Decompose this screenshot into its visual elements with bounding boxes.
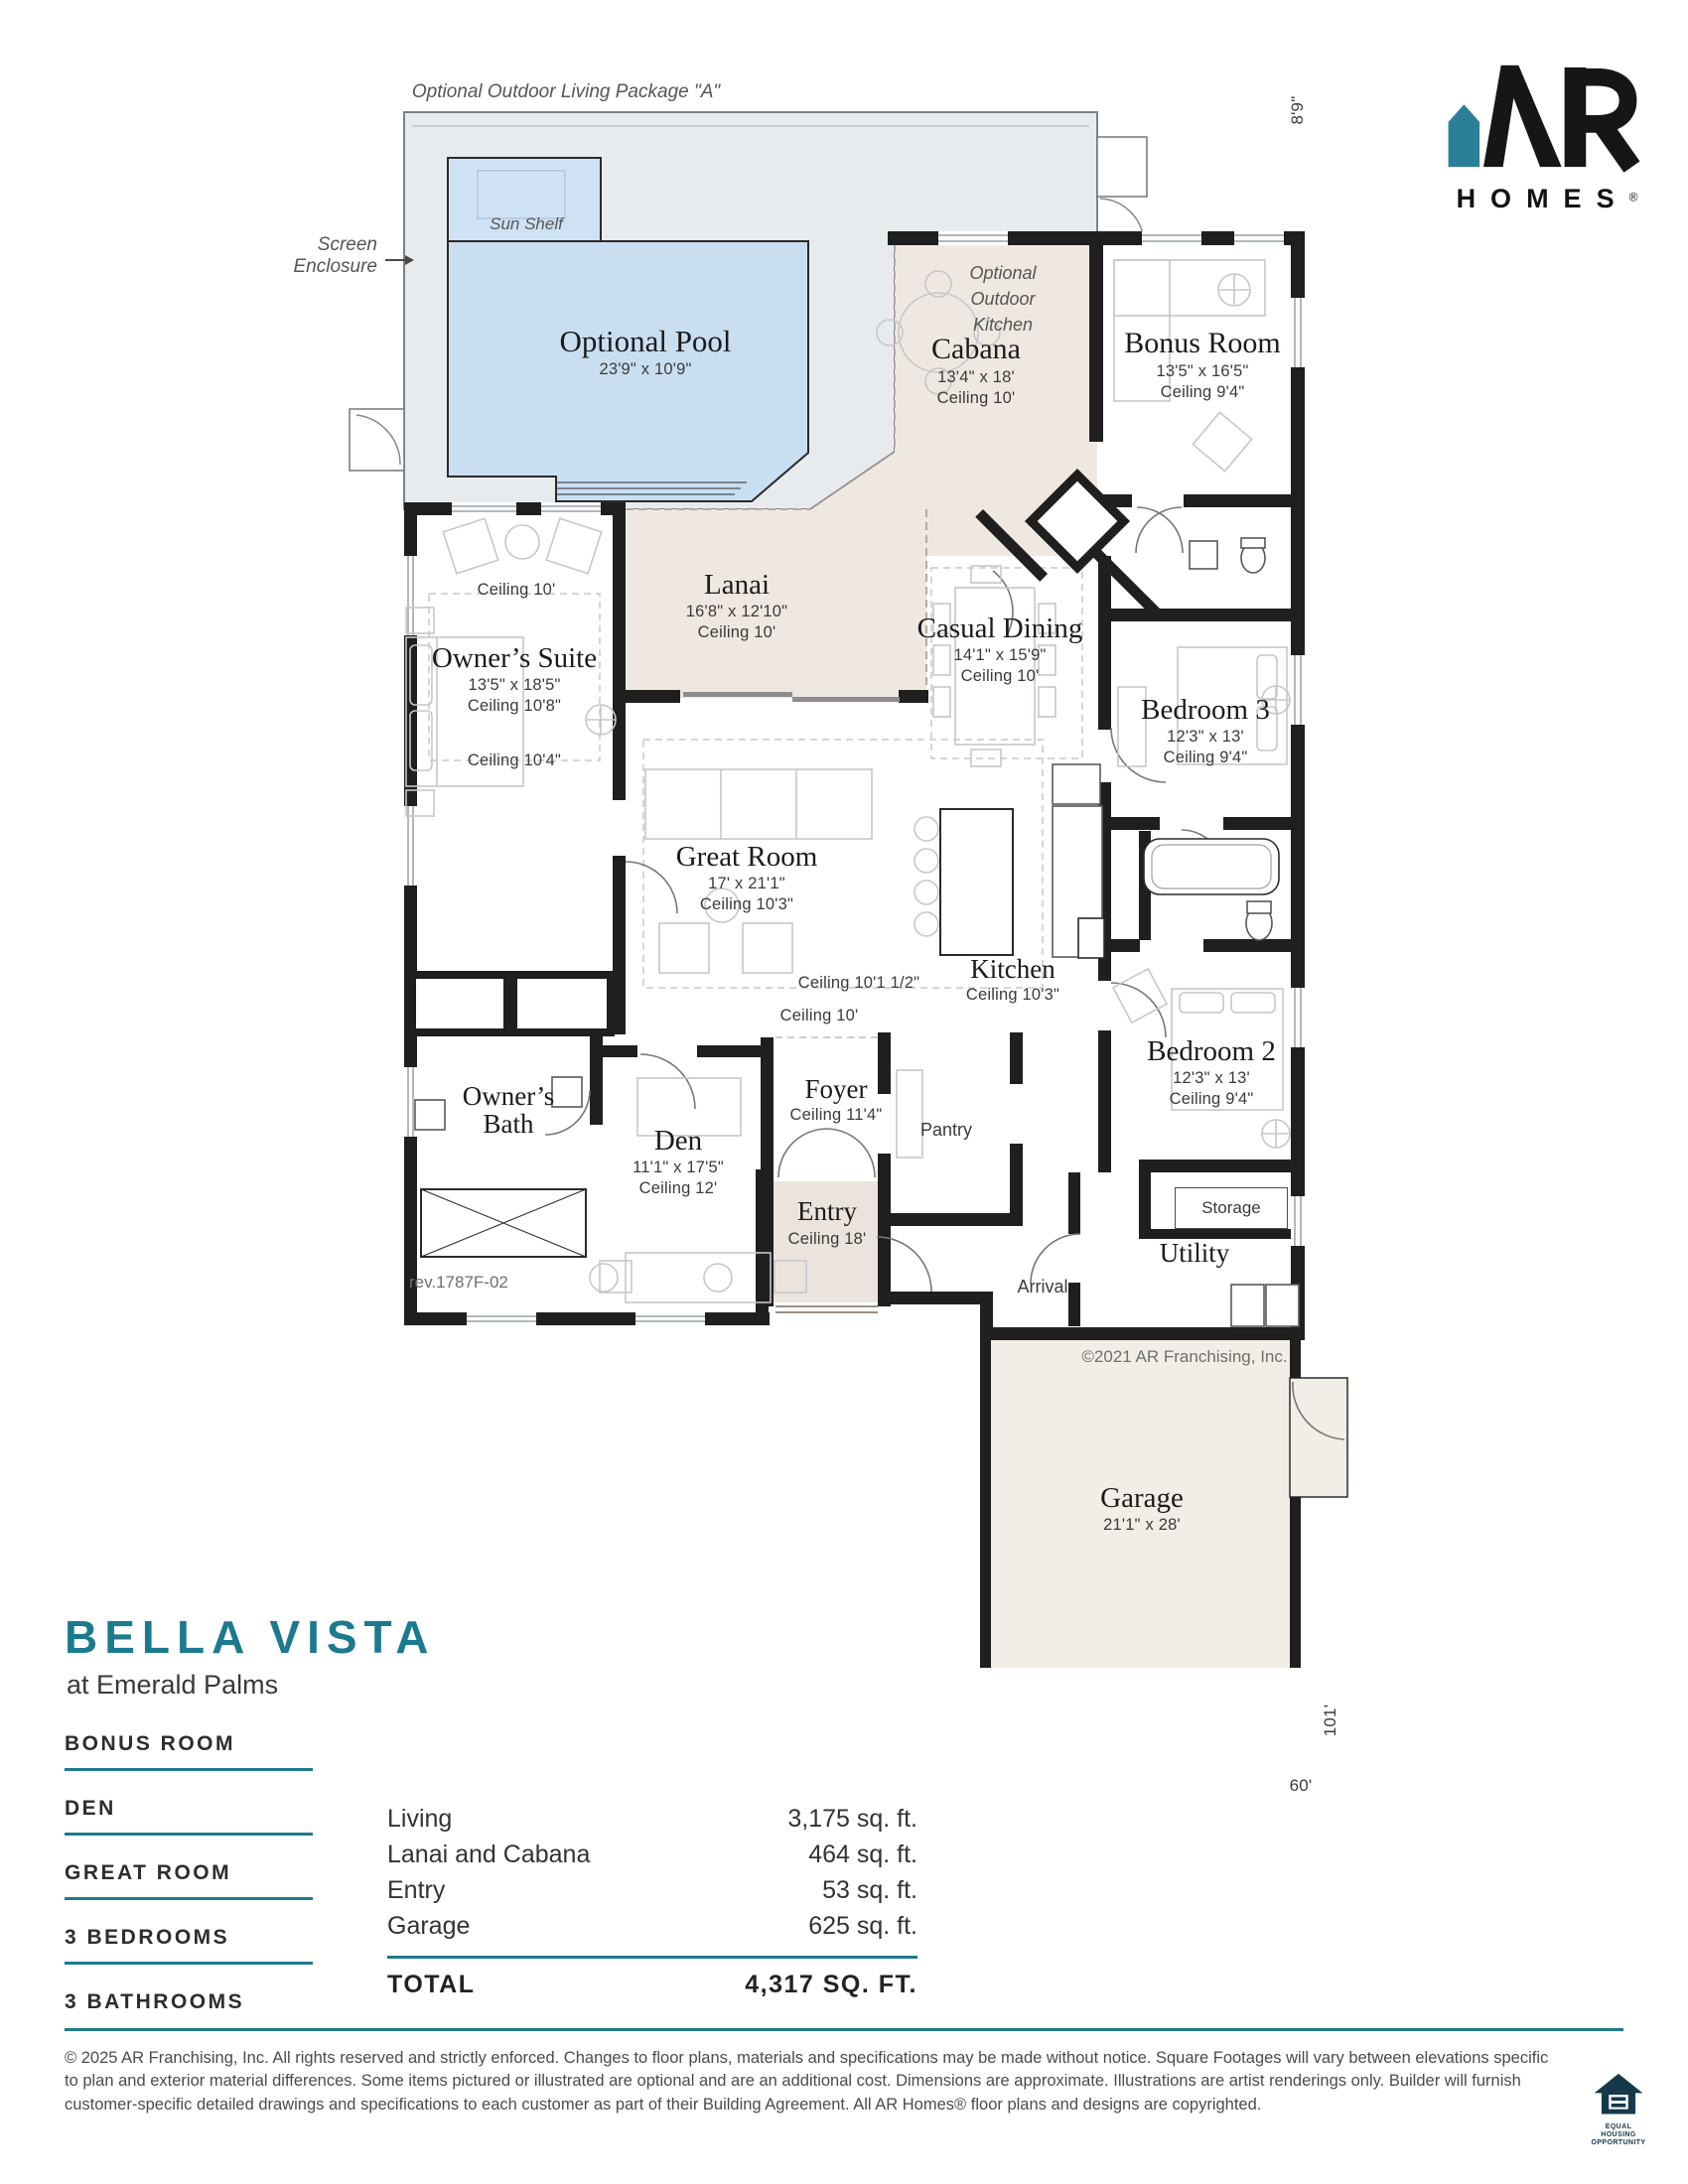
area-value: 464 sq. ft. bbox=[808, 1841, 917, 1876]
area-label: Entry bbox=[387, 1876, 445, 1912]
feature-bonus-room: BONUS ROOM bbox=[65, 1732, 313, 1756]
area-label: Garage bbox=[387, 1912, 470, 1948]
casual-dining-ceiling: Ceiling 10' bbox=[891, 666, 1109, 687]
feature-list: BONUS ROOM DEN GREAT ROOM 3 BEDROOMS 3 B… bbox=[65, 1732, 313, 2014]
table-row: Garage625 sq. ft. bbox=[387, 1912, 917, 1948]
owners-bath-line2: Bath bbox=[419, 1110, 598, 1138]
dimension-top: 8'9" bbox=[1287, 75, 1309, 145]
bedroom2-dims: 12'3" x 13' bbox=[1112, 1068, 1311, 1089]
screen-enclosure-line1: Screen bbox=[228, 234, 377, 256]
den-ceiling: Ceiling 12' bbox=[589, 1178, 768, 1199]
area-label: Lanai and Cabana bbox=[387, 1841, 590, 1876]
owners-bath-line1: Owner’s bbox=[419, 1082, 598, 1110]
ar-homes-logo: HOMES® bbox=[1428, 58, 1658, 214]
table-total-divider bbox=[387, 1956, 917, 1959]
plan-copyright: ©2021 AR Franchising, Inc. bbox=[1036, 1347, 1334, 1367]
bedroom3-label: Bedroom 3 bbox=[1106, 695, 1305, 725]
pool-label: Optional Pool bbox=[496, 326, 794, 358]
floor-plan-sheet: Optional Outdoor Living Package "A" Scre… bbox=[0, 0, 1688, 2184]
footer-divider bbox=[65, 2028, 1623, 2031]
bonus-room-dims: 13'5" x 16'5" bbox=[1103, 361, 1302, 382]
feature-divider bbox=[65, 1962, 313, 1965]
garage-dims: 21'1" x 28' bbox=[1023, 1515, 1261, 1536]
area-value: 53 sq. ft. bbox=[822, 1876, 917, 1912]
owners-suite-ceiling-below: Ceiling 10'4" bbox=[405, 751, 624, 771]
casual-dining-dims: 14'1" x 15'9" bbox=[891, 645, 1109, 666]
plan-title: BELLA VISTA bbox=[65, 1610, 435, 1664]
feature-bedrooms: 3 BEDROOMS bbox=[65, 1926, 313, 1950]
legal-text: © 2025 AR Franchising, Inc. All rights r… bbox=[65, 2047, 1549, 2116]
casual-dining-label: Casual Dining bbox=[891, 614, 1109, 643]
bedroom3-ceiling: Ceiling 9'4" bbox=[1106, 748, 1305, 768]
outdoor-kitchen-line1: Optional bbox=[904, 260, 1102, 286]
pantry-label: Pantry bbox=[897, 1120, 996, 1141]
lanai-ceiling: Ceiling 10' bbox=[647, 622, 826, 643]
table-total-row: TOTAL4,317 SQ. FT. bbox=[387, 1971, 917, 1999]
bedroom3-dims: 12'3" x 13' bbox=[1106, 727, 1305, 748]
pool-dims: 23'9" x 10'9" bbox=[496, 359, 794, 380]
area-value: 625 sq. ft. bbox=[808, 1912, 917, 1948]
bedroom2-ceiling: Ceiling 9'4" bbox=[1112, 1089, 1311, 1110]
den-dims: 11'1" x 17'5" bbox=[589, 1158, 768, 1178]
owners-suite-label: Owner’s Suite bbox=[405, 643, 624, 673]
feature-divider bbox=[65, 1833, 313, 1836]
screen-enclosure-label: Screen Enclosure bbox=[228, 234, 377, 278]
ceiling-note-hall: Ceiling 10' bbox=[740, 1006, 899, 1026]
great-room-label: Great Room bbox=[623, 842, 871, 872]
great-room-ceiling: Ceiling 10'3" bbox=[623, 894, 871, 915]
screen-enclosure-arrow-head bbox=[405, 255, 414, 265]
owners-bath-label: Owner’s Bath bbox=[419, 1082, 598, 1139]
entry-label: Entry bbox=[773, 1197, 882, 1225]
table-row: Entry53 sq. ft. bbox=[387, 1876, 917, 1912]
foyer-label: Foyer bbox=[767, 1075, 906, 1103]
lanai-dims: 16'8" x 12'10" bbox=[647, 602, 826, 622]
equal-housing-icon bbox=[1593, 2071, 1644, 2118]
feature-bathrooms: 3 BATHROOMS bbox=[65, 1990, 313, 2014]
den-label: Den bbox=[589, 1126, 768, 1156]
lanai-label: Lanai bbox=[647, 570, 826, 600]
ar-logo-mark bbox=[1439, 58, 1647, 175]
feature-great-room: GREAT ROOM bbox=[65, 1861, 313, 1885]
feature-den: DEN bbox=[65, 1797, 313, 1821]
utility-label: Utility bbox=[1125, 1239, 1264, 1267]
logo-reg-mark: ® bbox=[1629, 191, 1638, 205]
outdoor-kitchen-line2: Outdoor bbox=[904, 286, 1102, 312]
great-room-dims: 17' x 21'1" bbox=[623, 874, 871, 894]
area-value: 3,175 sq. ft. bbox=[787, 1805, 917, 1841]
logo-brand-text: HOMES bbox=[1457, 184, 1629, 213]
cabana-ceiling: Ceiling 10' bbox=[877, 388, 1075, 409]
garage-label: Garage bbox=[1023, 1483, 1261, 1513]
eho-line2: OPPORTUNITY bbox=[1587, 2139, 1650, 2147]
equal-housing-logo: EQUAL HOUSING OPPORTUNITY bbox=[1587, 2071, 1650, 2147]
eho-line1: EQUAL HOUSING bbox=[1587, 2123, 1650, 2139]
dimension-right: 101' bbox=[1320, 1691, 1341, 1750]
revision-label: rev.1787F-02 bbox=[409, 1273, 578, 1293]
entry-ceiling: Ceiling 18' bbox=[773, 1229, 882, 1250]
sun-shelf-label: Sun Shelf bbox=[457, 214, 596, 234]
package-title: Optional Outdoor Living Package "A" bbox=[328, 81, 804, 103]
bedroom2-label: Bedroom 2 bbox=[1112, 1036, 1311, 1066]
bonus-room-label: Bonus Room bbox=[1103, 328, 1302, 359]
cabana-dims: 13'4" x 18' bbox=[877, 367, 1075, 388]
cabana-label: Cabana bbox=[877, 334, 1075, 365]
screen-enclosure-line2: Enclosure bbox=[228, 256, 377, 278]
plan-subtitle: at Emerald Palms bbox=[67, 1670, 278, 1701]
owners-suite-ceiling: Ceiling 10'8" bbox=[405, 696, 624, 717]
owners-suite-ceiling-above: Ceiling 10' bbox=[417, 580, 616, 601]
feature-divider bbox=[65, 1897, 313, 1900]
total-label: TOTAL bbox=[387, 1971, 476, 1999]
ceiling-note-mid: Ceiling 10'1 1/2" bbox=[740, 973, 978, 994]
feature-divider bbox=[65, 1768, 313, 1771]
total-value: 4,317 SQ. FT. bbox=[745, 1971, 917, 1999]
area-table: Living3,175 sq. ft. Lanai and Cabana464 … bbox=[387, 1805, 917, 1999]
dimension-bottom: 60' bbox=[1271, 1775, 1331, 1797]
owners-suite-dims: 13'5" x 18'5" bbox=[405, 675, 624, 696]
storage-label: Storage bbox=[1175, 1187, 1288, 1229]
arrival-label: Arrival bbox=[983, 1277, 1102, 1297]
foyer-ceiling: Ceiling 11'4" bbox=[767, 1105, 906, 1126]
table-row: Lanai and Cabana464 sq. ft. bbox=[387, 1841, 917, 1876]
outdoor-kitchen-label: Optional Outdoor Kitchen bbox=[904, 260, 1102, 338]
area-label: Living bbox=[387, 1805, 452, 1841]
bonus-room-ceiling: Ceiling 9'4" bbox=[1103, 382, 1302, 403]
table-row: Living3,175 sq. ft. bbox=[387, 1805, 917, 1841]
